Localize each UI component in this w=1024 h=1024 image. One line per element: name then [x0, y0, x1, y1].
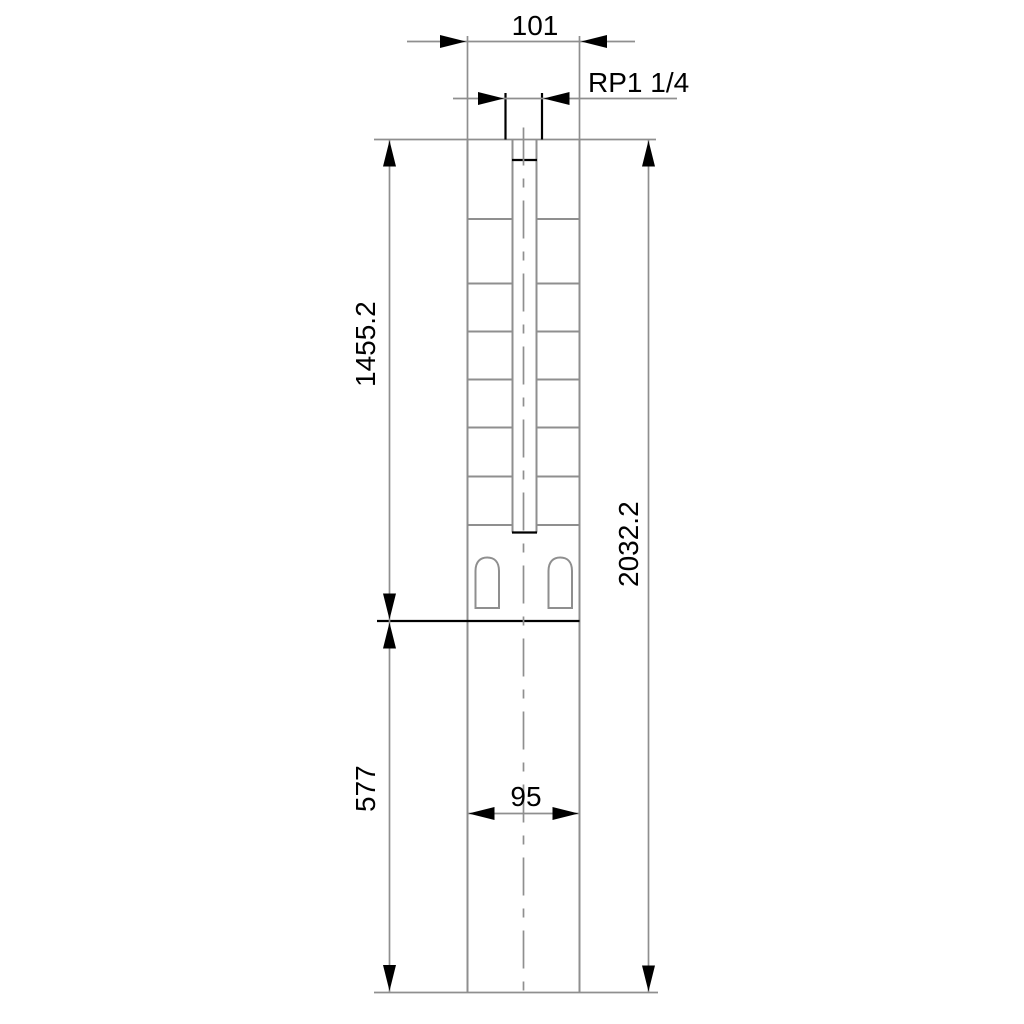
dimension-label-pump-length: 1455.2 — [350, 301, 381, 387]
riser-pipe — [512, 140, 537, 533]
arrow-up-icon — [383, 141, 396, 167]
dimension-left-vertical: 1455.2 577 — [350, 140, 396, 993]
arrow-right-icon — [581, 35, 607, 48]
pump-body — [377, 140, 580, 993]
pump-dimension-drawing: 101 RP1 1/4 1455.2 577 2032.2 95 — [0, 0, 1024, 1024]
arrow-left-icon — [440, 35, 466, 48]
arrow-down-icon — [383, 594, 396, 620]
dimension-label-motor-length: 577 — [350, 765, 381, 812]
dimension-label-motor-width: 95 — [510, 781, 541, 812]
dimension-label-thread: RP1 1/4 — [588, 67, 689, 98]
right-slot — [549, 558, 573, 609]
arrow-up-icon — [642, 141, 655, 167]
arrow-left-icon — [478, 92, 504, 105]
arrow-up-icon — [383, 623, 396, 649]
dimension-total-length: 2032.2 — [613, 140, 655, 993]
arrow-right-icon — [553, 807, 579, 820]
arrow-down-icon — [383, 965, 396, 991]
dimension-label-total-length: 2032.2 — [613, 501, 644, 587]
dimension-top-width: 101 — [407, 10, 635, 48]
technical-drawing-canvas: 101 RP1 1/4 1455.2 577 2032.2 95 — [0, 0, 1024, 1024]
left-slot — [476, 558, 500, 609]
arrow-right-icon — [544, 92, 570, 105]
dimension-motor-width: 95 — [468, 781, 580, 820]
arrow-down-icon — [642, 966, 655, 992]
arrow-left-icon — [469, 807, 495, 820]
dimension-label-top-width: 101 — [512, 10, 559, 41]
dimension-thread: RP1 1/4 — [453, 67, 689, 105]
